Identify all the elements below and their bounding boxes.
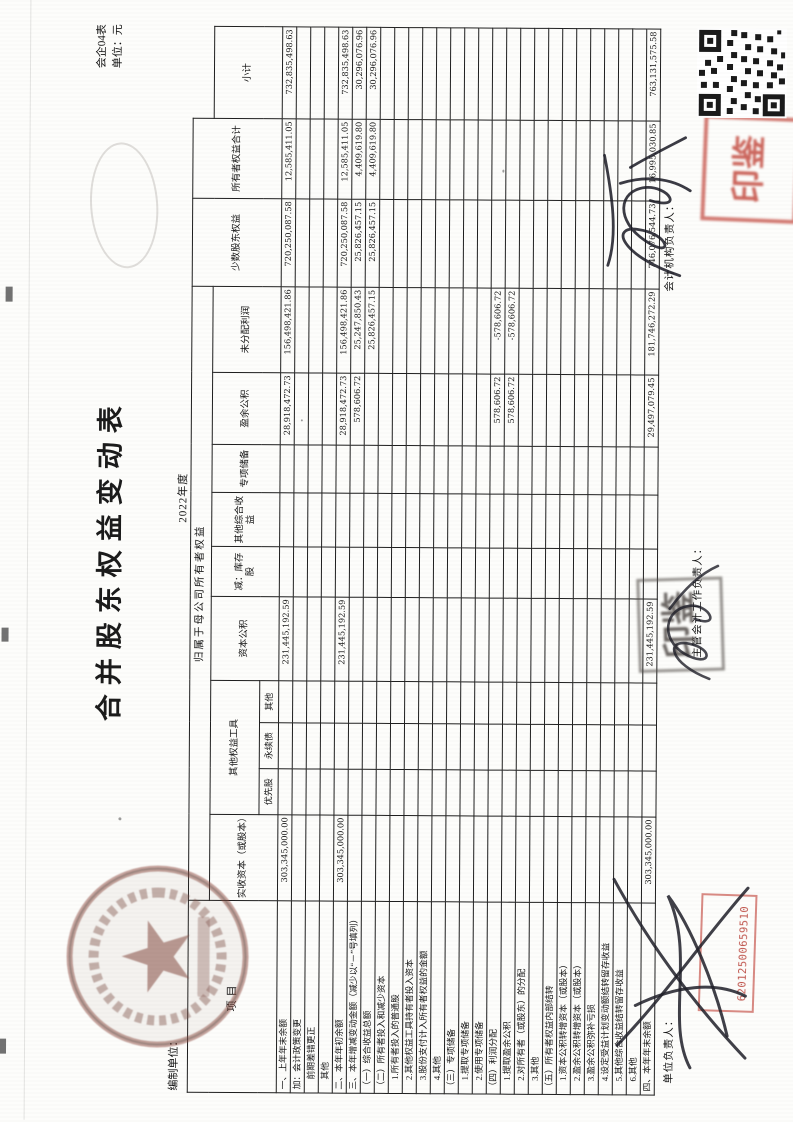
cell-value <box>434 374 448 446</box>
cell-value <box>376 769 390 815</box>
cell-value <box>464 120 478 200</box>
accounting-head-signature <box>590 125 711 296</box>
cell-value <box>348 769 362 815</box>
cell-value <box>490 494 504 548</box>
cell-value <box>531 598 546 682</box>
cell-value <box>533 288 548 374</box>
cell-value <box>334 723 348 769</box>
cell-value <box>434 446 448 494</box>
cell-value: 12,585,411.05 <box>338 119 352 199</box>
cell-value <box>336 493 350 547</box>
cell-value <box>517 548 531 598</box>
row-label: 3.股份支付计入所有者权益的金额 <box>416 902 431 1094</box>
cell-value <box>628 771 642 817</box>
cell-value <box>349 597 364 681</box>
cell-value <box>616 447 630 495</box>
cell-value <box>376 723 390 769</box>
cell-value <box>417 816 432 902</box>
col-header-other-comprehensive-income: 其他综合收益 <box>212 492 280 546</box>
cell-value <box>573 683 587 725</box>
cell-value <box>280 445 294 493</box>
cell-value <box>560 494 574 548</box>
cell-value <box>445 816 460 902</box>
cell-value <box>518 446 532 494</box>
cell-value <box>561 201 576 289</box>
qr-code <box>697 28 788 119</box>
cell-value <box>394 27 409 119</box>
cell-value <box>575 289 590 375</box>
cell-value: 4,409,619.80 <box>366 119 380 199</box>
cell-value <box>390 769 404 815</box>
cell-value <box>436 120 450 200</box>
cell-value <box>324 27 339 119</box>
cell-value <box>488 724 502 770</box>
cell-value <box>630 447 644 495</box>
cell-value <box>532 494 546 548</box>
cell-value: 303,345,000.00 <box>277 815 292 901</box>
cell-value <box>574 375 588 447</box>
cell-value <box>642 725 656 771</box>
unit-head-signature <box>595 865 761 1076</box>
scan-artifact <box>2 628 9 642</box>
cell-value <box>348 723 362 769</box>
cell-value <box>421 288 436 374</box>
cell-value <box>462 374 476 446</box>
cell-value <box>433 682 447 724</box>
cell-value <box>587 549 601 599</box>
cell-value <box>436 28 451 120</box>
cell-value <box>615 599 630 683</box>
cell-value <box>503 682 517 724</box>
cell-value <box>461 548 475 598</box>
company-round-seal-stamp <box>59 858 256 1055</box>
cell-value <box>280 493 294 547</box>
cell-value <box>631 289 646 375</box>
cell-value: 12,585,411.05 <box>282 119 296 199</box>
cell-value <box>502 770 516 816</box>
cell-value <box>446 770 460 816</box>
cell-value <box>475 548 489 598</box>
cell-value <box>419 682 433 724</box>
cell-value <box>587 683 601 725</box>
cell-value: 25,826,457.15 <box>351 199 366 287</box>
col-header-total: 所有者权益合计 <box>193 118 282 199</box>
cell-value <box>323 199 338 287</box>
cell-value <box>435 288 450 374</box>
cell-value <box>460 724 474 770</box>
cell-value: 578,606.72 <box>350 373 364 445</box>
cell-value <box>447 598 462 682</box>
row-label: （四）利润分配 <box>486 902 501 1094</box>
cell-value <box>574 447 588 495</box>
cell-value <box>460 770 474 816</box>
cell-value <box>560 446 574 494</box>
cell-value <box>476 494 490 548</box>
cell-value <box>614 771 628 817</box>
reporting-period: 2022年度 <box>174 473 190 523</box>
cell-value <box>307 681 321 723</box>
cell-value: 4,409,619.80 <box>352 119 366 199</box>
cell-value <box>308 445 322 493</box>
cell-value <box>600 725 614 771</box>
cell-value <box>474 724 488 770</box>
cell-value <box>505 200 520 288</box>
cell-value <box>588 495 602 549</box>
cell-value <box>432 770 446 816</box>
cell-value <box>278 723 292 769</box>
cell-value <box>544 770 558 816</box>
cell-value <box>447 548 461 598</box>
cell-value <box>546 374 560 446</box>
row-label: （三）专项储备 <box>444 902 459 1094</box>
scan-artifact <box>6 287 13 302</box>
cell-value <box>420 374 434 446</box>
cell-value <box>632 29 647 121</box>
cell-value <box>278 769 292 815</box>
cell-value <box>547 288 562 374</box>
cell-value <box>378 493 392 547</box>
cell-value <box>545 548 559 598</box>
cell-value <box>588 447 602 495</box>
cell-value <box>473 816 488 902</box>
cell-value <box>364 445 378 493</box>
row-label: 2.其他权益工具持有者投入资本 <box>402 902 417 1094</box>
cell-value: 25,247,850.43 <box>351 287 366 373</box>
cell-value <box>586 725 600 771</box>
cell-value <box>543 816 558 902</box>
cell-value: 156,498,421.86 <box>281 287 296 373</box>
cell-value <box>532 374 546 446</box>
cell-value <box>572 771 586 817</box>
cell-value <box>587 599 602 683</box>
cell-value: 578,606.72 <box>490 374 504 446</box>
cell-value <box>419 598 434 682</box>
cell-value <box>434 494 448 548</box>
cell-value <box>418 724 432 770</box>
cell-value <box>548 120 562 200</box>
col-header-perpetual-bonds: 永续债 <box>259 723 278 769</box>
cell-value: 231,445,192.59 <box>335 597 350 681</box>
cell-value <box>544 724 558 770</box>
cell-value <box>463 200 478 288</box>
cell-value <box>392 445 406 493</box>
cell-value <box>520 120 534 200</box>
cell-value <box>293 597 308 681</box>
cell-value <box>517 682 531 724</box>
cell-value <box>405 548 419 598</box>
cell-value <box>562 121 576 201</box>
cell-value <box>324 119 338 199</box>
row-label: （一）综合收益总额 <box>360 901 375 1093</box>
cell-value <box>391 597 406 681</box>
cell-value <box>363 681 377 723</box>
cell-value <box>377 681 391 723</box>
cell-value <box>294 445 308 493</box>
col-header-capital-reserve: 资本公积 <box>211 596 280 680</box>
cell-value: 720,250,087.58 <box>337 199 352 287</box>
cell-value <box>321 547 335 597</box>
cell-value <box>559 682 573 724</box>
row-label: 三、本年增减变动金额（减少以“－”号填列） <box>346 901 361 1093</box>
cell-value <box>531 548 545 598</box>
landscape-page: 合并股东权益变动表 会企04表 单位：元 编制单位： 2022年度 项目 归属于… <box>0 0 793 1122</box>
col-header-special-reserve: 专项储备 <box>212 444 280 492</box>
cell-value <box>310 27 325 119</box>
cell-value: 231,445,192.59 <box>279 597 294 681</box>
cell-value <box>391 681 405 723</box>
cell-value <box>405 598 420 682</box>
row-label: （二）所有者投入和减少资本 <box>374 901 389 1093</box>
cell-value <box>279 547 293 597</box>
cell-value <box>404 770 418 816</box>
col-header-subtotal: 小计 <box>214 26 283 118</box>
cell-value <box>576 121 590 201</box>
scan-fold-line <box>24 0 32 1120</box>
cell-value <box>602 375 616 447</box>
cell-value <box>464 28 479 120</box>
cell-value <box>393 199 408 287</box>
cell-value <box>559 598 574 682</box>
cell-value <box>463 288 478 374</box>
cell-value <box>431 816 446 902</box>
cell-value <box>422 28 437 120</box>
cell-value <box>320 723 334 769</box>
cell-value <box>322 445 336 493</box>
scan-artifact <box>0 1039 6 1054</box>
cell-value <box>534 120 548 200</box>
cell-value <box>378 373 392 445</box>
cell-value: 28,918,472.73 <box>280 373 294 445</box>
cell-value <box>515 816 530 902</box>
cell-value <box>516 770 530 816</box>
cell-value <box>292 723 306 769</box>
cell-value <box>600 771 614 817</box>
cell-value <box>506 120 520 200</box>
cell-value <box>349 681 363 723</box>
red-name-seal-stamp: 印鉴 <box>700 114 793 224</box>
row-label: 1.提取盈余公积 <box>500 902 515 1094</box>
cell-value <box>617 289 632 375</box>
cell-value <box>520 28 535 120</box>
cell-value <box>379 199 394 287</box>
cell-value <box>389 815 404 901</box>
cell-value <box>531 682 545 724</box>
cell-value <box>642 771 656 817</box>
cell-value <box>532 446 546 494</box>
cell-value <box>530 770 544 816</box>
cell-value <box>310 119 324 199</box>
cell-value <box>390 723 404 769</box>
scanned-document: 合并股东权益变动表 会企04表 单位：元 编制单位： 2022年度 项目 归属于… <box>0 0 793 1122</box>
row-label: （五）所有者权益内部结转 <box>542 902 557 1094</box>
cell-value <box>375 815 390 901</box>
cell-value <box>487 816 502 902</box>
cell-value <box>422 120 436 200</box>
cell-value: 25,826,457.15 <box>365 287 380 373</box>
cell-value <box>477 200 492 288</box>
cell-value <box>378 445 392 493</box>
cell-value <box>559 548 573 598</box>
cell-value <box>446 724 460 770</box>
cell-value <box>589 289 604 375</box>
cell-value <box>334 769 348 815</box>
cell-value <box>476 446 490 494</box>
cell-value <box>421 200 436 288</box>
cell-value <box>307 547 321 597</box>
col-header-surplus-reserve: 盈余公积 <box>212 372 280 444</box>
cell-value <box>534 28 549 120</box>
cell-value <box>335 681 349 723</box>
cell-value <box>448 374 462 446</box>
cell-value <box>435 200 450 288</box>
currency-unit-label: 单位：元 <box>109 24 125 68</box>
cell-value <box>306 723 320 769</box>
cell-value <box>461 598 476 682</box>
cell-value <box>614 725 628 771</box>
cell-value <box>380 27 395 119</box>
cell-value <box>478 120 492 200</box>
cell-value <box>407 288 422 374</box>
cell-value <box>572 725 586 771</box>
cell-value <box>575 201 590 289</box>
row-label: 2.使用专项储备 <box>472 902 487 1094</box>
cell-value <box>558 770 572 816</box>
cell-value <box>418 770 432 816</box>
cell-value <box>450 28 465 120</box>
cell-value <box>547 200 562 288</box>
cell-value: 30,296,076.96 <box>366 27 381 119</box>
cell-value <box>379 287 394 373</box>
cell-value: 303,345,000.00 <box>333 815 348 901</box>
cell-value <box>350 493 364 547</box>
cell-value <box>475 598 490 682</box>
col-header-other-equity-instruments: 其他权益工具 <box>210 680 260 814</box>
row-label: 4.其他 <box>430 902 445 1094</box>
cell-value <box>601 683 615 725</box>
cell-value <box>533 200 548 288</box>
cell-value <box>433 598 448 682</box>
cell-value <box>501 816 516 902</box>
cell-value <box>347 815 362 901</box>
cell-value <box>403 816 418 902</box>
cell-value <box>408 120 422 200</box>
cell-value <box>644 495 658 549</box>
cell-value <box>392 373 406 445</box>
col-header-preferred-shares: 优先股 <box>259 769 278 815</box>
cell-value <box>574 495 588 549</box>
cell-value <box>335 547 349 597</box>
cell-value <box>560 374 574 446</box>
cell-value <box>492 120 506 200</box>
cell-value <box>377 547 391 597</box>
cell-value: 28,918,472.73 <box>336 373 350 445</box>
cell-value <box>307 597 322 681</box>
cell-value <box>562 29 577 121</box>
cell-value <box>489 548 503 598</box>
cell-value <box>322 373 336 445</box>
cell-value <box>362 769 376 815</box>
cell-value <box>279 681 293 723</box>
cell-value <box>291 815 306 901</box>
cell-value <box>406 374 420 446</box>
row-label: 1.资本公积转增资本（或股本） <box>556 902 571 1094</box>
cell-value <box>504 494 518 548</box>
cell-value <box>615 683 629 725</box>
cell-value <box>406 494 420 548</box>
row-label: 加：会计政策变更 <box>290 901 305 1093</box>
col-header-treasury-stock: 减：库存股 <box>211 546 279 596</box>
cell-value: 29,497,079.45 <box>644 375 658 447</box>
col-header-other-instruments: 其他 <box>260 681 279 723</box>
cell-value <box>478 28 493 120</box>
cell-value <box>561 289 576 375</box>
cell-value <box>308 493 322 547</box>
cell-value <box>504 446 518 494</box>
cell-value <box>363 597 378 681</box>
cell-value <box>586 771 600 817</box>
cell-value <box>449 200 464 288</box>
cell-value <box>404 724 418 770</box>
cell-value <box>616 375 630 447</box>
cell-value <box>294 493 308 547</box>
cell-value <box>392 493 406 547</box>
cell-value: 578,606.72 <box>504 374 518 446</box>
cell-value <box>601 549 615 599</box>
cell-value <box>321 681 335 723</box>
col-header-minority: 少数股东权益 <box>192 198 282 287</box>
cell-value <box>295 287 310 373</box>
col-header-undistributed-profit: 未分配利润 <box>213 286 282 372</box>
cell-value <box>615 549 629 599</box>
cell-value <box>292 769 306 815</box>
cell-value <box>293 547 307 597</box>
cell-value <box>590 29 605 121</box>
cell-value: 732,835,498.63 <box>338 27 353 119</box>
cell-value: -578,606.72 <box>491 288 506 374</box>
cell-value <box>350 445 364 493</box>
cell-value <box>476 374 490 446</box>
cell-value <box>419 548 433 598</box>
cell-value <box>506 28 521 120</box>
cell-value <box>474 770 488 816</box>
cell-value <box>518 374 532 446</box>
cell-value: 763,131,575.58 <box>646 29 661 121</box>
cell-value <box>529 816 544 902</box>
cell-value <box>336 445 350 493</box>
cell-value <box>450 120 464 200</box>
cell-value <box>571 817 586 903</box>
cell-value <box>407 200 422 288</box>
row-label: 其他 <box>318 901 333 1093</box>
cell-value <box>420 446 434 494</box>
row-label: 前期差错更正 <box>304 901 319 1093</box>
cell-value <box>377 597 392 681</box>
cell-value <box>449 288 464 374</box>
cell-value <box>296 27 311 119</box>
cell-value <box>363 547 377 597</box>
cell-value <box>408 28 423 120</box>
cell-value <box>488 770 502 816</box>
cell-value <box>489 598 504 682</box>
cell-value <box>447 682 461 724</box>
cell-value <box>628 725 642 771</box>
cell-value <box>448 494 462 548</box>
cell-value <box>548 28 563 120</box>
cell-value <box>305 815 320 901</box>
cell-value <box>502 724 516 770</box>
row-label: 3.其他 <box>528 902 543 1094</box>
form-number: 会企04表 <box>93 24 109 68</box>
